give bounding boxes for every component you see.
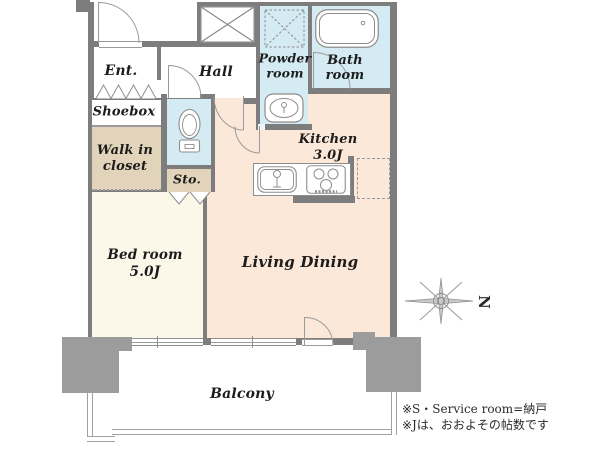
window-tick [252, 336, 253, 348]
swing-door-icon [98, 2, 141, 43]
label-powder-line1: Powder [259, 52, 312, 67]
swing-door-icon [235, 126, 260, 153]
wall-bedroom-partition [203, 192, 207, 338]
closet-cross-icon [200, 6, 255, 43]
washing-machine-icon [264, 9, 305, 48]
window-mid-line [211, 342, 296, 343]
label-bedroom-size: 5.0J [107, 264, 182, 281]
pillar-bottom-left [62, 337, 119, 393]
balcony-rail-bottom-step [87, 436, 115, 442]
balcony-rail-right [391, 392, 397, 435]
compass-north-label: N [475, 295, 493, 309]
label-powder-line2: room [259, 66, 312, 81]
wall-top-left-notch [76, 0, 90, 12]
refrigerator-space [357, 158, 390, 199]
bathtub-icon [315, 9, 379, 48]
label-kitchen-size: 3.0J [299, 148, 358, 164]
wall-ent-hall [157, 47, 161, 80]
footnotes: ※S・Service room=納戸 ※Jは、おおよその帖数です [402, 402, 549, 433]
swing-door-icon [214, 96, 244, 130]
floor-plan-page: N Ent. Hall Powder room Bath room Shoebo… [0, 0, 600, 450]
kitchen-sink-icon [257, 166, 297, 193]
label-hall: Hall [199, 64, 233, 80]
folding-door-icon [168, 191, 211, 205]
folding-door-icon [96, 84, 156, 99]
balcony-rail-left [87, 393, 93, 442]
balcony-rail-bottom [112, 429, 397, 435]
gas-stove-icon [306, 165, 346, 194]
label-bath-line2: room [326, 68, 365, 83]
label-bedroom-name: Bed room [107, 247, 182, 264]
label-bedroom: Bed room 5.0J [107, 247, 182, 281]
wall-toilet-storage [167, 165, 211, 169]
label-storage: Sto. [173, 172, 201, 187]
window-tick [157, 336, 158, 348]
washbasin-icon [264, 93, 304, 123]
label-wic-line1: Walk in [97, 143, 153, 159]
closet-opening-dashed [92, 189, 161, 191]
wall-toilet-left [161, 94, 167, 192]
label-living-dining: Living Dining [242, 253, 359, 271]
label-balcony: Balcony [210, 386, 274, 402]
label-shoebox: Shoebox [93, 105, 156, 120]
footnote-line1: ※S・Service room=納戸 [402, 402, 549, 418]
pillar-bottom-right [366, 337, 421, 392]
label-powder: Powder room [259, 52, 312, 81]
sliding-window [211, 338, 296, 346]
footnote-line2: ※Jは、おおよその帖数です [402, 418, 549, 434]
swing-door-icon [168, 65, 201, 98]
label-wic-line2: closet [97, 159, 153, 175]
wall-hall-living [243, 98, 260, 104]
toilet-icon [178, 108, 201, 154]
label-kitchen: Kitchen 3.0J [299, 132, 358, 164]
label-bath-line1: Bath [326, 53, 365, 68]
wall-bottom-between-windows [203, 338, 211, 345]
swing-door-icon [304, 317, 333, 345]
label-bath: Bath room [326, 53, 365, 83]
label-walk-in-closet: Walk in closet [97, 143, 153, 175]
line-shoebox-closet [92, 125, 161, 127]
label-kitchen-name: Kitchen [299, 132, 358, 148]
wall-counter-bottom [293, 196, 355, 203]
label-entrance: Ent. [105, 63, 138, 79]
